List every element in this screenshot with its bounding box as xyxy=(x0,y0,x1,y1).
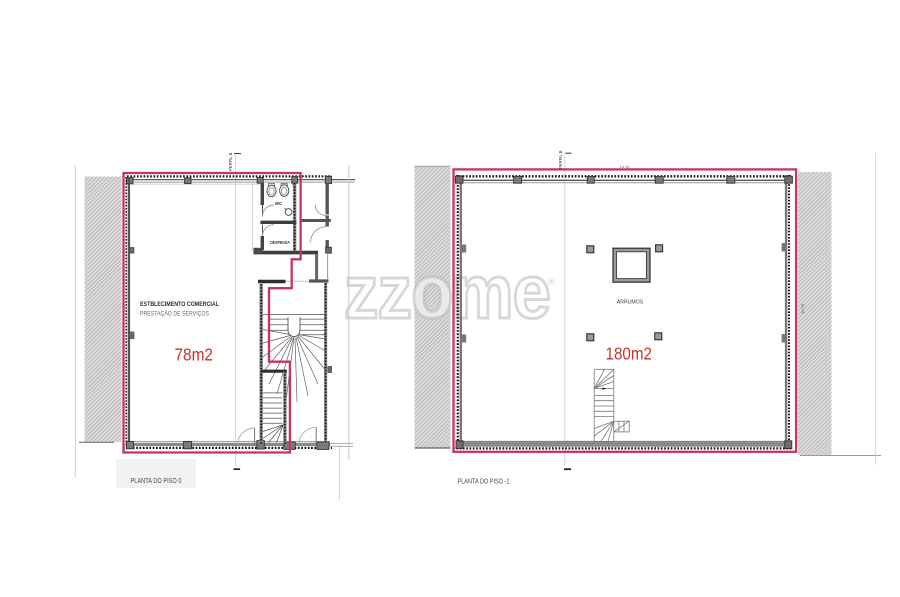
svg-text:ARRUMOS: ARRUMOS xyxy=(617,299,644,305)
svg-text:180m2: 180m2 xyxy=(606,344,653,364)
svg-text:WC: WC xyxy=(275,201,283,206)
svg-text:PLANTA DO PISO 0: PLANTA DO PISO 0 xyxy=(131,478,182,485)
svg-text:ESTBLECIMENTO COMERCIAL: ESTBLECIMENTO COMERCIAL xyxy=(140,301,219,308)
svg-text:10.76: 10.76 xyxy=(800,303,805,314)
svg-text:DESPENSA: DESPENSA xyxy=(270,240,290,245)
svg-text:PERFIL B: PERFIL B xyxy=(558,150,563,169)
svg-text:PLANTA DO PISO -1: PLANTA DO PISO -1 xyxy=(458,479,510,486)
svg-text:®: ® xyxy=(548,277,555,287)
svg-text:14.10: 14.10 xyxy=(620,164,631,169)
svg-text:PRESTAÇÃO DE SERVIÇOS: PRESTAÇÃO DE SERVIÇOS xyxy=(140,309,209,318)
svg-text:78m2: 78m2 xyxy=(175,345,214,365)
svg-text:zzome: zzome xyxy=(344,250,550,335)
svg-text:PERFIL B: PERFIL B xyxy=(228,152,233,171)
